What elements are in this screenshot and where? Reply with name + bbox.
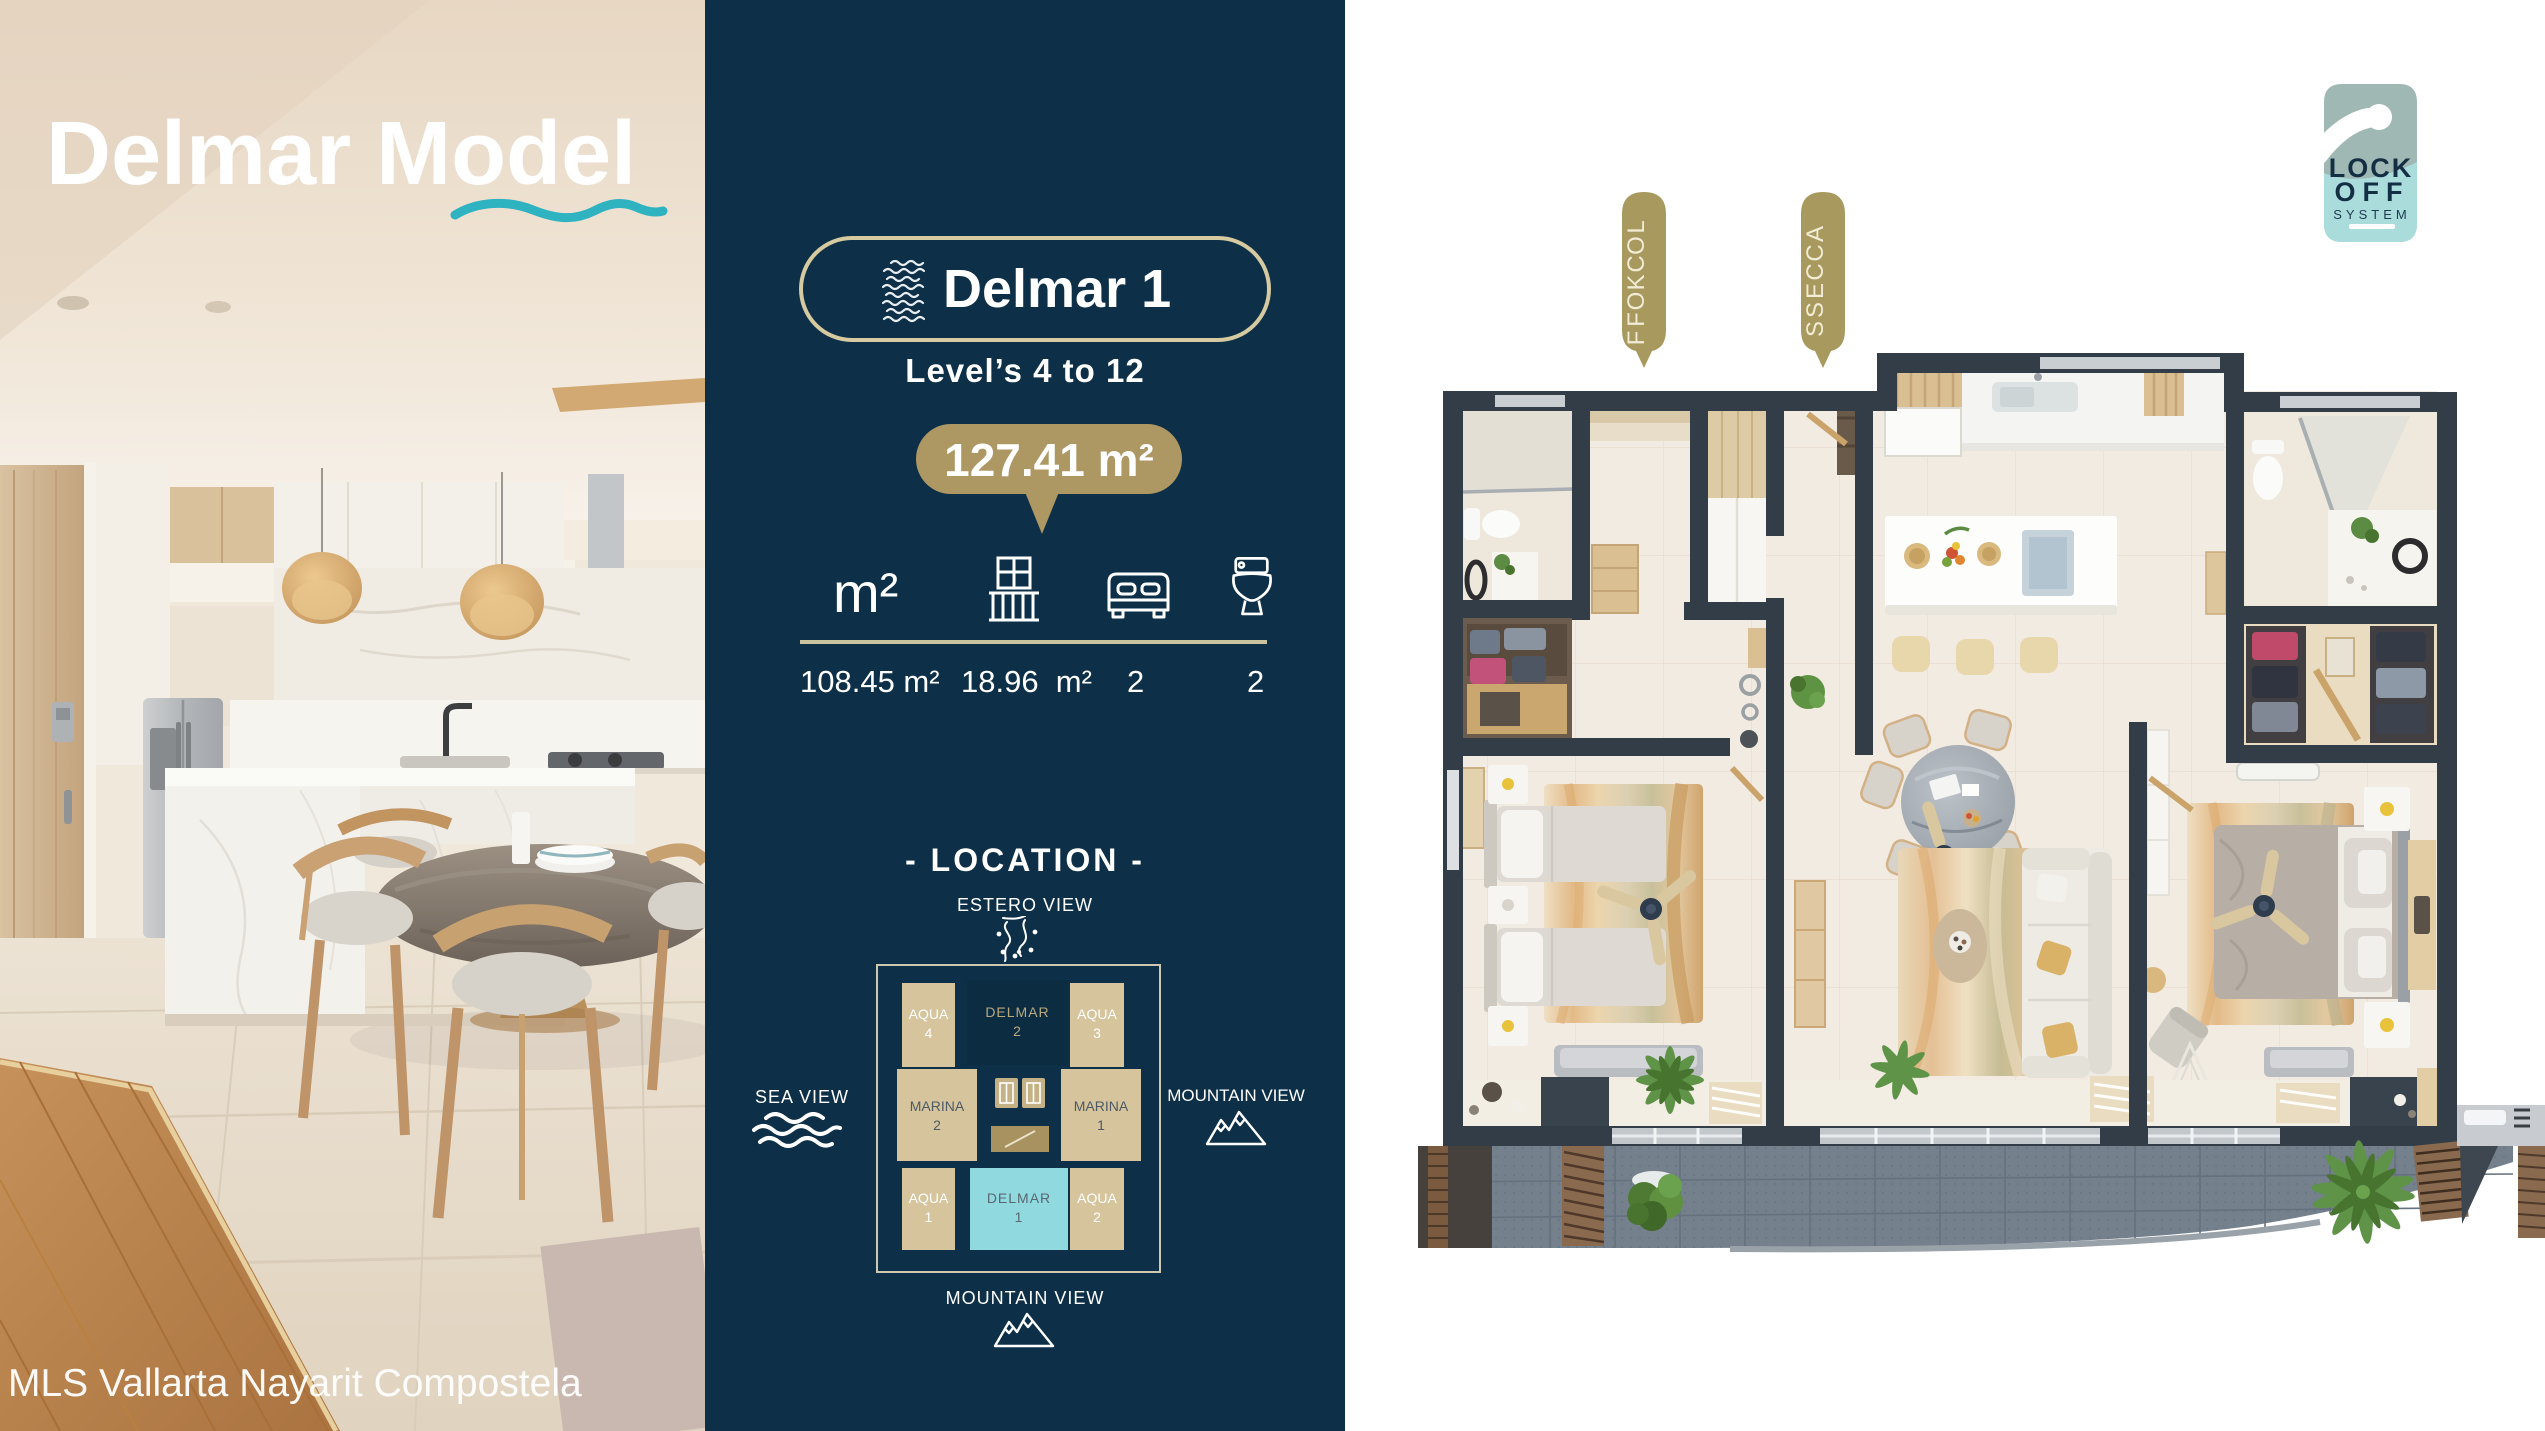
svg-text:O: O bbox=[1623, 236, 1650, 255]
svg-text:OFF: OFF bbox=[2335, 177, 2410, 207]
svg-text:Delmar Model: Delmar Model bbox=[46, 104, 636, 204]
svg-text:F: F bbox=[1623, 312, 1650, 327]
svg-text:MLS Vallarta Nayarit Compostel: MLS Vallarta Nayarit Compostela bbox=[8, 1362, 582, 1405]
svg-text:C: C bbox=[1802, 244, 1829, 261]
svg-text:C: C bbox=[1623, 255, 1650, 272]
svg-text:L: L bbox=[1623, 220, 1650, 233]
svg-text:E: E bbox=[1802, 283, 1829, 299]
svg-text:O: O bbox=[1623, 292, 1650, 311]
svg-text:C: C bbox=[1802, 263, 1829, 280]
svg-text:F: F bbox=[1623, 331, 1650, 346]
svg-text:SYSTEM: SYSTEM bbox=[2333, 207, 2410, 222]
svg-text:S: S bbox=[1802, 302, 1829, 318]
svg-text:A: A bbox=[1802, 226, 1829, 242]
svg-text:K: K bbox=[1623, 274, 1650, 290]
svg-text:S: S bbox=[1802, 321, 1829, 337]
